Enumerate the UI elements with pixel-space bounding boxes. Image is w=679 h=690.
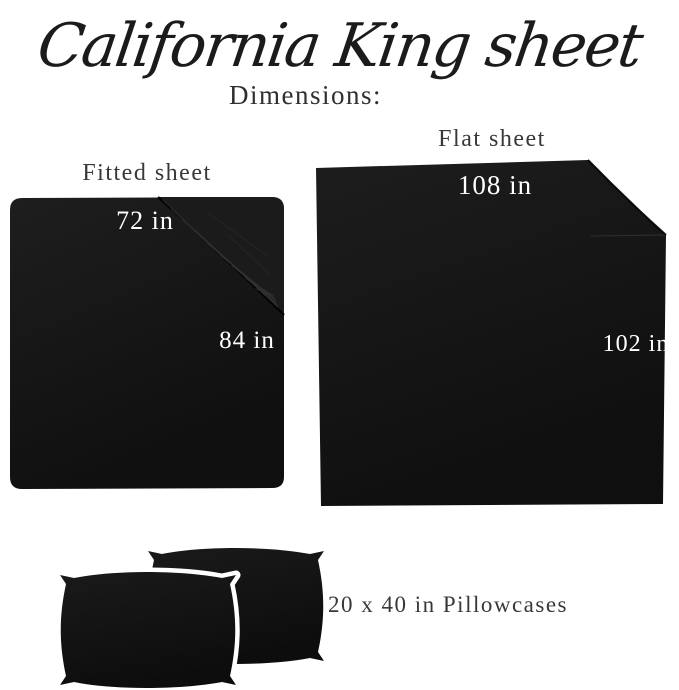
pillowcases-illustration xyxy=(58,540,330,690)
fitted-sheet-width-dimension: 72 in xyxy=(109,206,181,236)
pillow-front xyxy=(60,572,236,688)
pillowcases-dimension-label: 20 x 40 in Pillowcases xyxy=(328,592,568,618)
fitted-sheet-label: Fitted sheet xyxy=(8,160,286,187)
sheet-dimensions-infographic: California King sheet Dimensions: Fitted… xyxy=(0,0,679,690)
flat-sheet-length-dimension: 102 in xyxy=(600,331,672,358)
subtitle-dimensions: Dimensions: xyxy=(229,80,382,111)
flat-sheet-width-dimension: 108 in xyxy=(456,170,534,201)
fitted-sheet-length-dimension: 84 in xyxy=(212,327,282,355)
flat-sheet-label: Flat sheet xyxy=(316,126,668,153)
